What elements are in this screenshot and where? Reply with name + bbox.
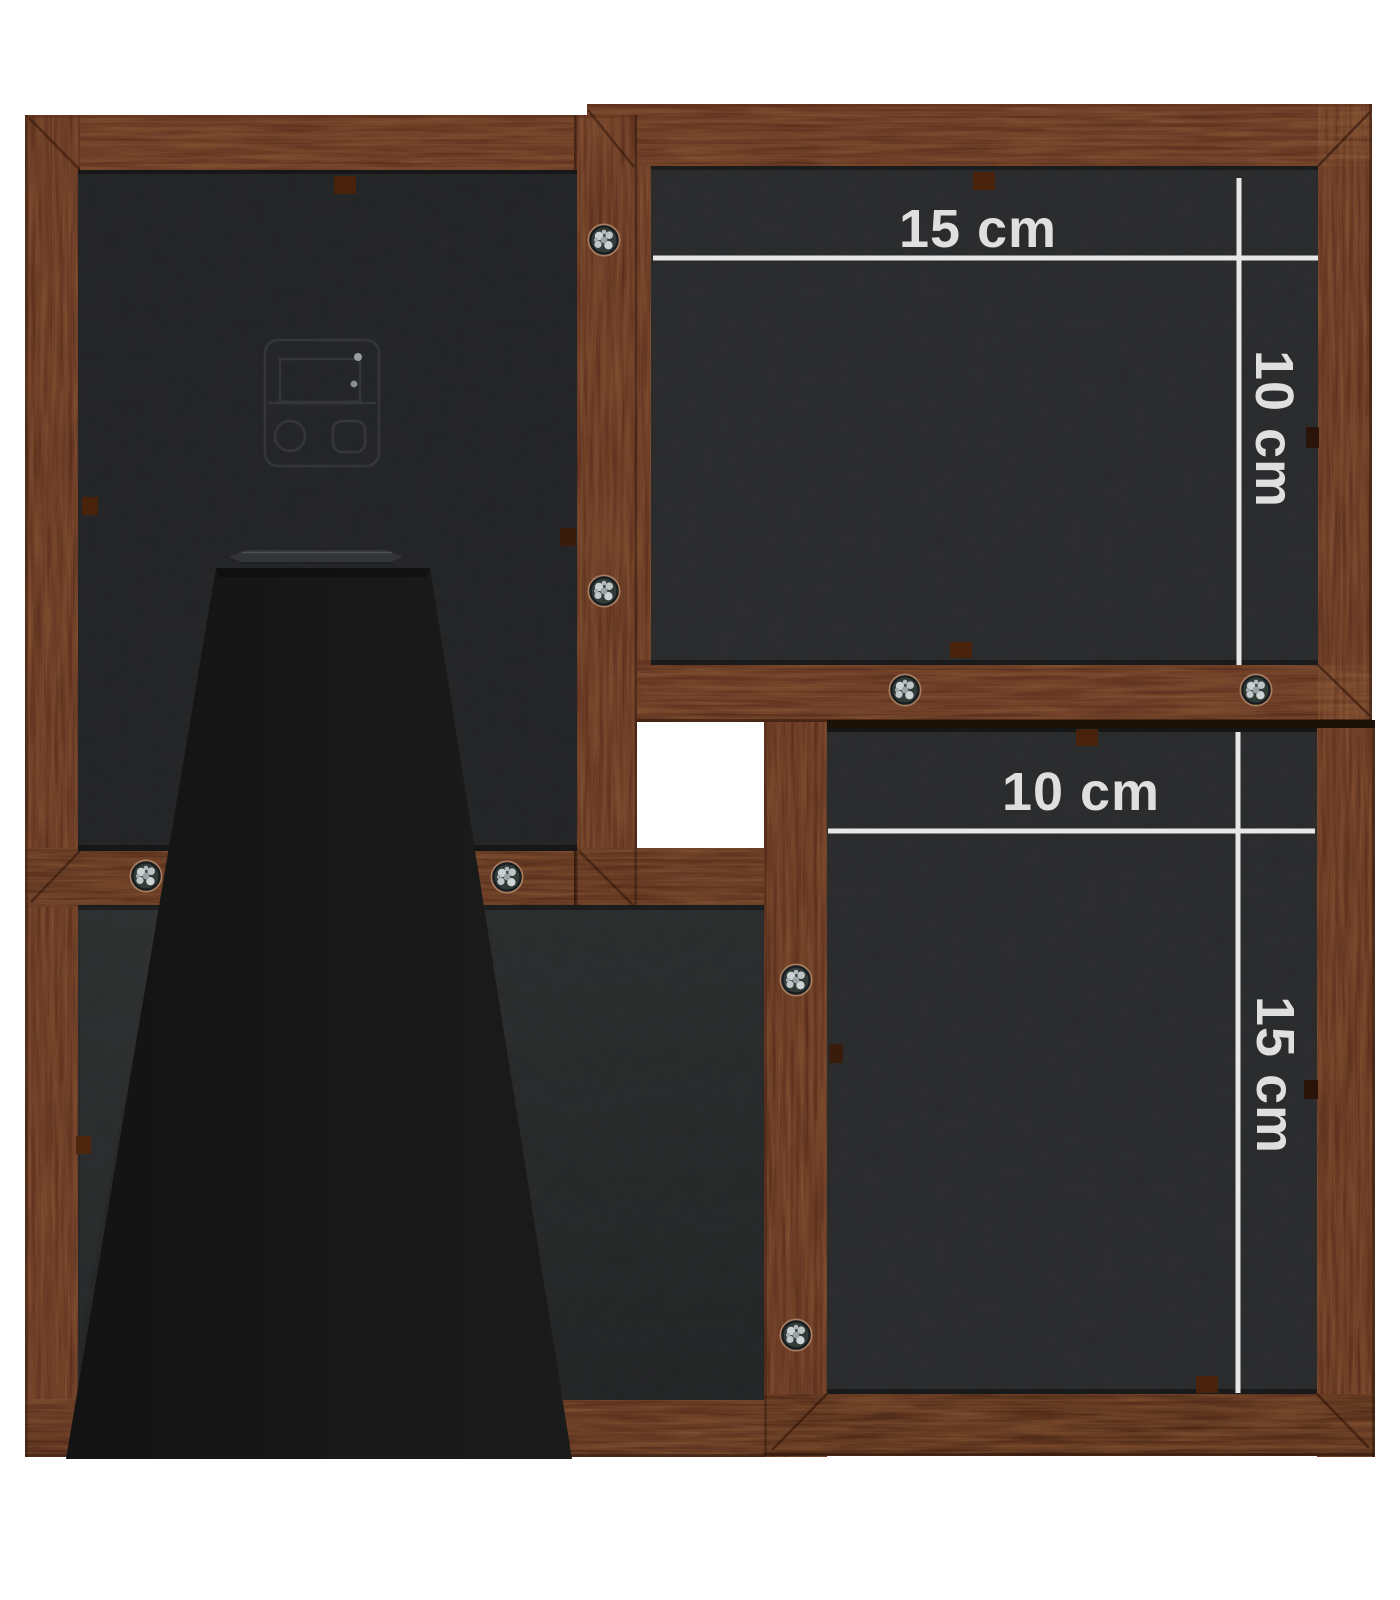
svg-text:15 cm: 15 cm xyxy=(1245,996,1305,1154)
svg-text:10 cm: 10 cm xyxy=(1244,350,1304,508)
svg-text:10 cm: 10 cm xyxy=(1002,762,1160,822)
svg-text:15 cm: 15 cm xyxy=(899,199,1057,259)
